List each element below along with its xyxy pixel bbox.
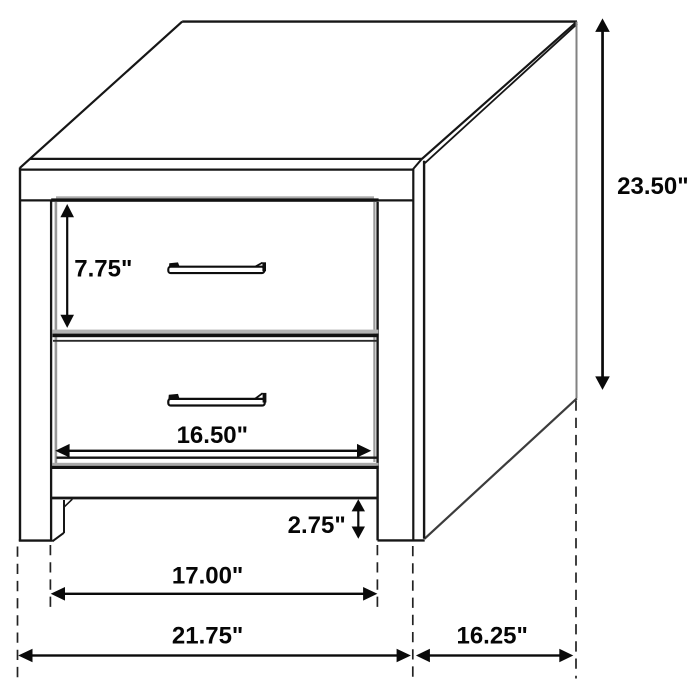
svg-text:7.75": 7.75" [74, 255, 132, 282]
svg-text:17.00": 17.00" [172, 563, 243, 590]
svg-text:16.50": 16.50" [177, 422, 248, 449]
svg-text:16.25": 16.25" [456, 623, 527, 650]
svg-text:21.75": 21.75" [172, 623, 243, 650]
svg-text:2.75": 2.75" [288, 512, 346, 539]
svg-text:23.50": 23.50" [617, 173, 688, 200]
